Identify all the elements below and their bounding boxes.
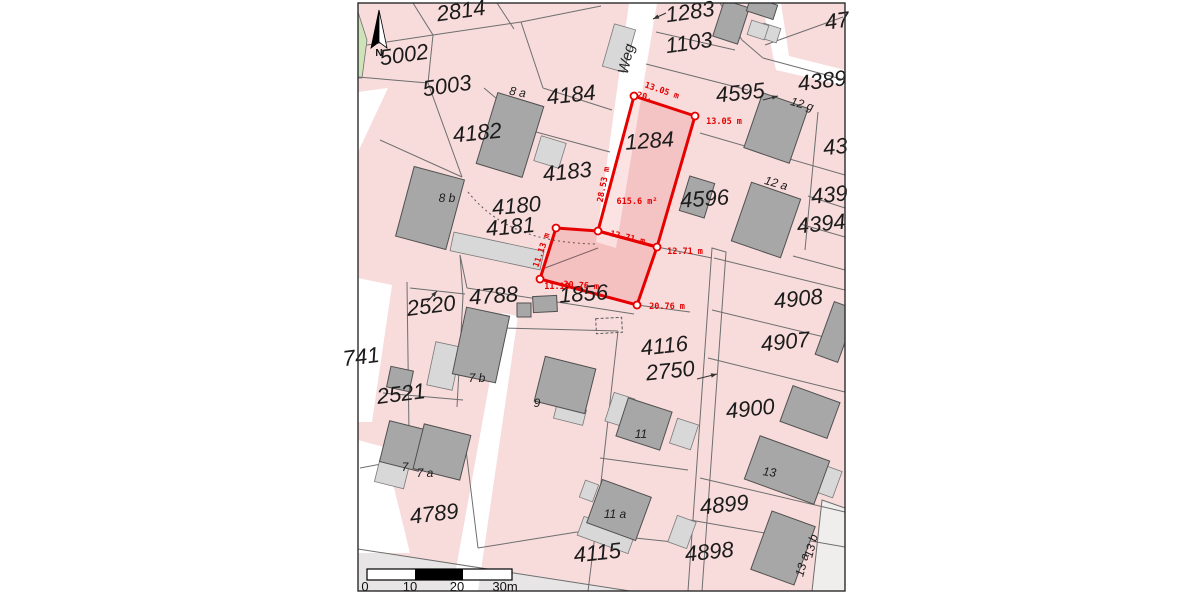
boundary-vertex-point[interactable] xyxy=(654,244,661,251)
house-number-label-7a: 7 a xyxy=(417,466,434,480)
house-number-label-11: 11 xyxy=(635,427,647,441)
boundary-vertex-point[interactable] xyxy=(595,228,602,235)
scale-tick-label-10: 10 xyxy=(403,579,417,594)
building-footprint xyxy=(517,303,531,317)
measurement-label: 20.76 m xyxy=(649,302,685,312)
parcel-label-4394: 4394 xyxy=(796,209,847,239)
scale-tick-label-0: 0 xyxy=(361,579,368,594)
boundary-vertex-point[interactable] xyxy=(692,113,699,120)
boundary-vertex-point[interactable] xyxy=(537,276,544,283)
parcel-label-4183: 4183 xyxy=(542,156,594,186)
house-number-label-7b: 7 b xyxy=(469,371,486,385)
parcel-label-4900: 4900 xyxy=(725,393,777,423)
parcel-label-4596: 4596 xyxy=(679,184,730,212)
parcel-label-2750: 2750 xyxy=(644,355,697,385)
parcel-label-4181: 4181 xyxy=(485,212,536,241)
parcel-label-4595: 4595 xyxy=(715,77,767,107)
parcel-label-4788: 4788 xyxy=(468,281,519,309)
parcel-label-4908: 4908 xyxy=(773,283,825,313)
parcel-label-439: 439 xyxy=(810,180,849,209)
parcel-label-4898: 4898 xyxy=(684,536,736,566)
north-label: N xyxy=(375,48,382,59)
cadastral-map-view: 2814500250031283110347438941844182418341… xyxy=(0,0,1200,600)
parcel-label-4907: 4907 xyxy=(760,326,812,356)
parcel-label-741: 741 xyxy=(341,342,380,371)
parcel-label-4899: 4899 xyxy=(699,490,750,520)
measurement-label: 13.05 m xyxy=(706,117,742,127)
boundary-vertex-point[interactable] xyxy=(553,225,560,232)
measurement-label: 12.71 m xyxy=(667,247,703,257)
cadastral-map[interactable]: 2814500250031283110347438941844182418341… xyxy=(0,0,1200,600)
house-number-label-9: 9 xyxy=(534,396,541,410)
parcel-label-4115: 4115 xyxy=(572,538,622,568)
house-number-label-8a: 8 a xyxy=(508,84,527,101)
house-number-label-8b: 8 b xyxy=(439,191,456,205)
parcel-area-label: 615.6 m² xyxy=(617,197,658,207)
scale-tick-label-30m: 30m xyxy=(492,579,517,594)
building-footprint xyxy=(533,295,558,312)
house-number-label-11a: 11 a xyxy=(604,507,627,521)
parcel-label-1284: 1284 xyxy=(624,126,675,154)
boundary-vertex-point[interactable] xyxy=(634,302,641,309)
scale-tick-label-20: 20 xyxy=(450,579,464,594)
parcel-label-4182: 4182 xyxy=(452,118,503,148)
house-number-label-13: 13 xyxy=(762,464,777,480)
parcel-label-4184: 4184 xyxy=(546,80,597,110)
parcel-label-47: 47 xyxy=(823,6,851,34)
